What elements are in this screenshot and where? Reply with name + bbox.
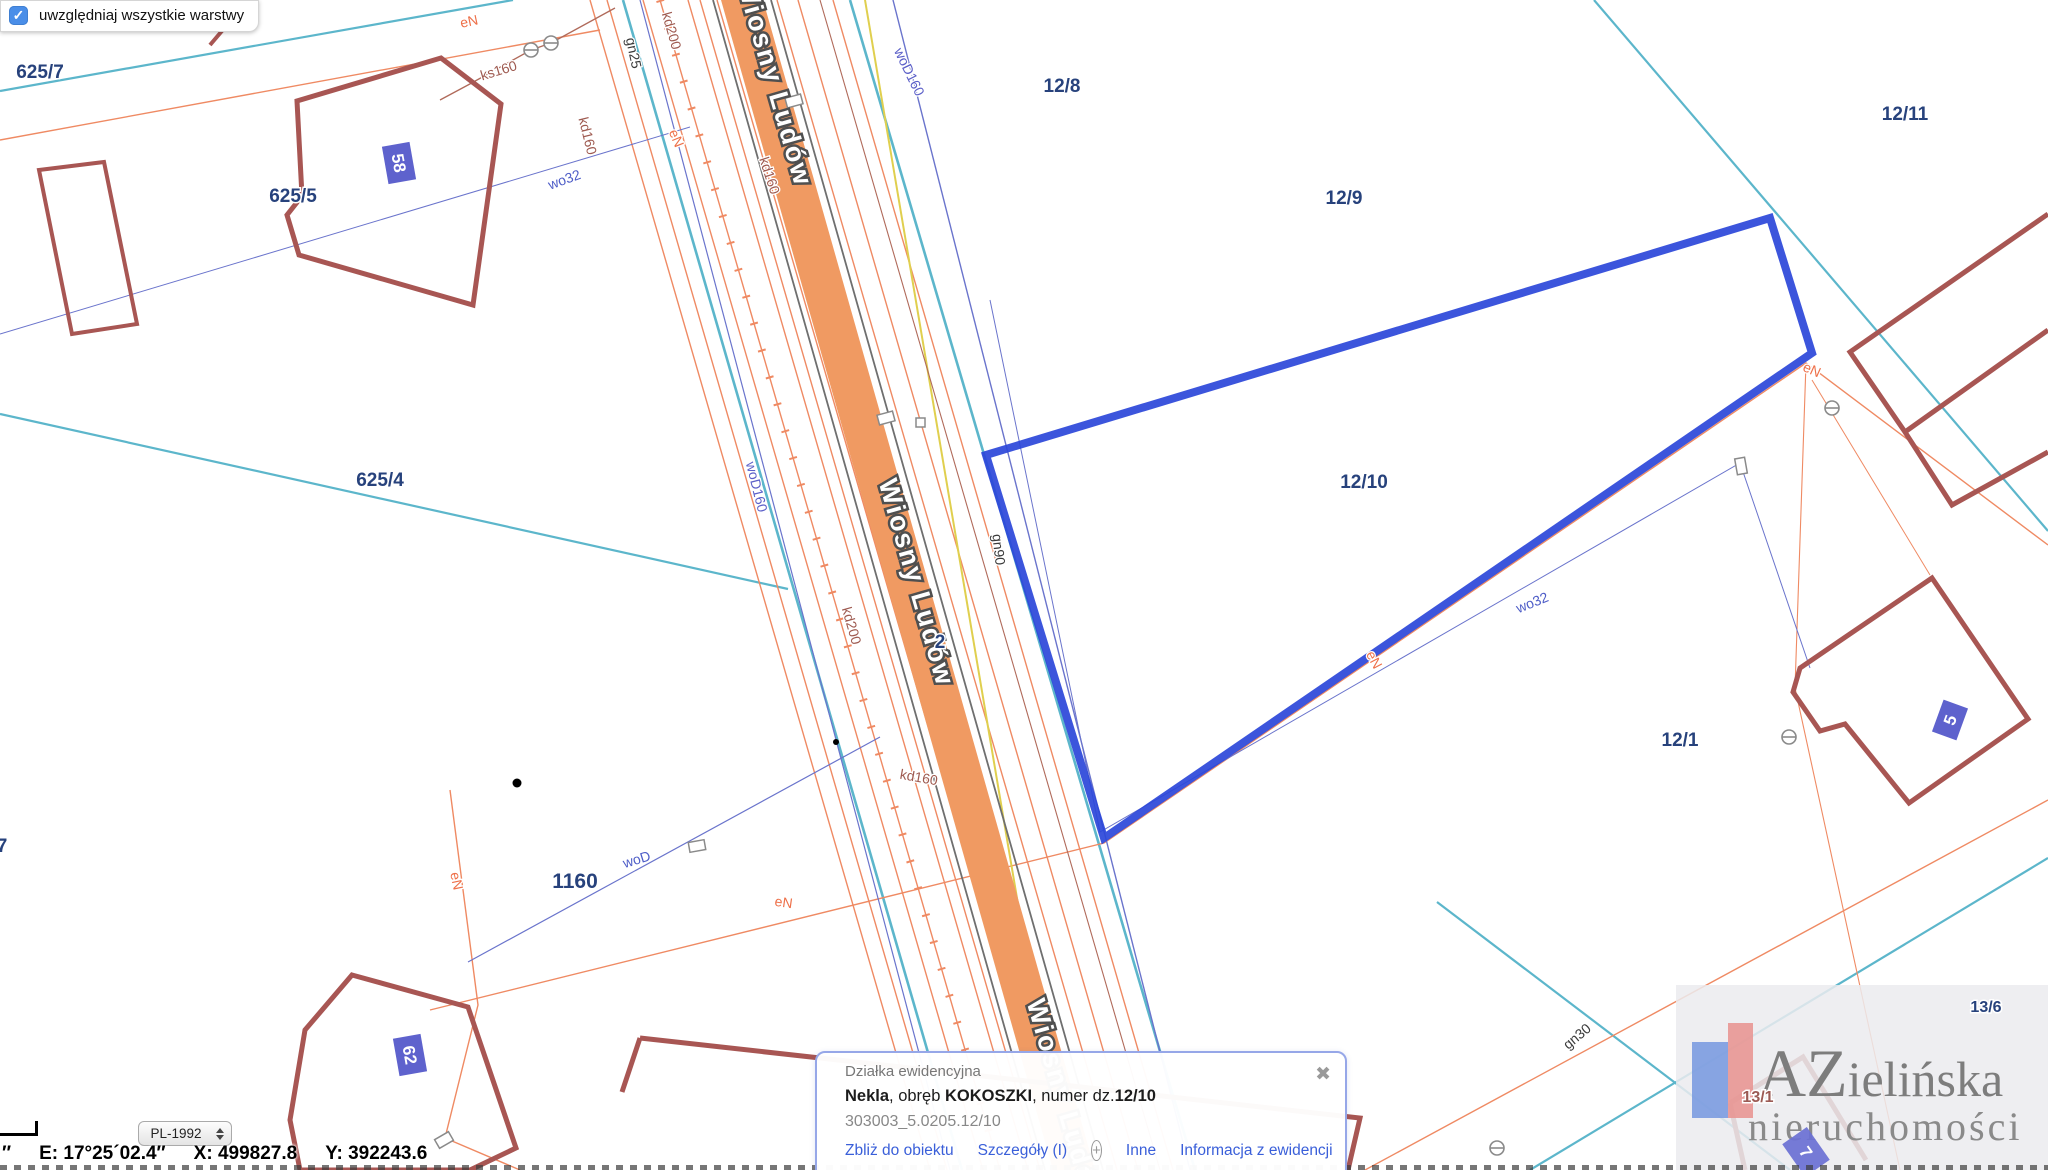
building-badge: 62 — [393, 1034, 427, 1076]
utility-label: ks160 — [478, 57, 519, 83]
utility-label: gn30 — [1560, 1020, 1594, 1052]
popup-sep1: , obręb — [889, 1087, 945, 1105]
circle-plus-icon[interactable]: + — [1091, 1140, 1102, 1161]
manhole-symbols — [524, 36, 1839, 1155]
popup-title: Działka ewidencyjna — [845, 1063, 1329, 1080]
utility-label: wo32 — [545, 166, 583, 193]
utility-label: wo32 — [1513, 589, 1551, 617]
utility-label: eN — [774, 893, 794, 911]
utility-label: kd160 — [899, 766, 940, 788]
parcel-label: 13/1 — [1742, 1089, 1773, 1106]
utility-label: kd160 — [575, 115, 600, 156]
manhole-icon — [544, 36, 558, 50]
parcel-label: 12/9 — [1326, 188, 1363, 209]
map-canvas[interactable]: AZielińska nieruchomości Wiosny Ludów Wi… — [0, 0, 2048, 1170]
building-badge: 58 — [382, 142, 416, 184]
logo-bar-blue — [1692, 1042, 1728, 1118]
utility-label: eN — [666, 127, 688, 150]
utility-labels: eN eN eN eN eN eN ks160 kd200 kd160 kd16… — [447, 10, 1823, 1052]
popup-sep2: , numer dz. — [1032, 1087, 1115, 1105]
utility-label: kd200 — [659, 10, 685, 51]
utility-label: kd200 — [839, 605, 865, 646]
parcel-label: 625/4 — [356, 470, 404, 491]
utility-label: woD160 — [891, 44, 928, 98]
parcel-label: 2 — [935, 632, 946, 653]
parcel-label: 7 — [0, 836, 7, 857]
svg-text:58: 58 — [388, 152, 410, 174]
building-badge: 5 — [1932, 700, 1968, 741]
layers-toggle-label: uwzględniaj wszystkie warstwy — [39, 7, 244, 24]
other-link[interactable]: Inne — [1126, 1142, 1156, 1160]
utility-label: eN — [459, 11, 480, 30]
cabinet-icon — [435, 1132, 454, 1149]
popup-actions: Zbliż do obiektu Szczegóły (I) + Inne In… — [845, 1140, 1329, 1161]
scalebar-tick — [35, 1121, 38, 1136]
building-small-left — [39, 162, 137, 334]
manhole-icon — [1490, 1141, 1504, 1155]
select-arrows-icon — [213, 1128, 227, 1140]
cabinet-symbols — [435, 94, 1748, 1148]
popup-parcel-id: 303003_5.0205.12/10 — [845, 1113, 1329, 1131]
utility-label: eN — [447, 871, 466, 892]
popup-district: KOKOSZKI — [945, 1087, 1032, 1105]
coord-y: Y: 392243.6 — [325, 1143, 427, 1165]
scalebar — [0, 1133, 38, 1136]
parcel-label: 12/1 — [1662, 730, 1699, 751]
popup-parcel-number: 12/10 — [1115, 1087, 1156, 1105]
utility-label: woD160 — [743, 459, 771, 514]
popup-parcel-line: Nekla, obręb KOKOSZKI, numer dz.12/10 — [845, 1087, 1329, 1106]
utility-label: woD — [620, 847, 652, 871]
coord-e: E: 17°25´02.4″ — [39, 1143, 166, 1165]
manhole-icon — [1825, 401, 1839, 415]
cabinet-icon — [688, 840, 705, 853]
parcel-label: 12/8 — [1044, 76, 1081, 97]
popup-town: Nekla — [845, 1087, 889, 1105]
manhole-icon — [1782, 730, 1796, 744]
building-house-5 — [1793, 578, 2028, 803]
parcel-label: 1160 — [552, 870, 598, 893]
parcel-label: 12/11 — [1882, 104, 1929, 125]
parcel-label: 625/7 — [16, 62, 64, 83]
boundary-point-dots — [513, 739, 840, 788]
parcel-label: 13/6 — [1970, 999, 2001, 1016]
details-link[interactable]: Szczegóły (I) — [978, 1142, 1068, 1160]
layers-checkbox[interactable]: ✓ — [9, 6, 28, 25]
svg-text:62: 62 — [399, 1044, 421, 1066]
parcel-label: 12/10 — [1340, 472, 1388, 493]
node-square-icon — [916, 418, 925, 427]
coordinate-readout: ″ E: 17°25´02.4″ X: 499827.8 Y: 392243.6 — [2, 1143, 427, 1165]
street-name-labels: Wiosny Ludów Wiosny Ludów Wiosny Ludów — [731, 0, 1109, 1170]
coord-seconds: ″ — [2, 1143, 11, 1165]
parcel-label: 625/5 — [269, 186, 317, 207]
cabinet-icon — [1735, 457, 1748, 474]
crs-select-value: PL-1992 — [139, 1126, 213, 1141]
manhole-icon — [524, 43, 538, 57]
utility-label: gn90 — [989, 533, 1008, 566]
coord-x: X: 499827.8 — [194, 1143, 298, 1165]
registry-info-link[interactable]: Informacja z ewidencji — [1180, 1142, 1332, 1160]
close-icon[interactable]: ✖ — [1315, 1063, 1331, 1086]
parcel-info-popup: ✖ Działka ewidencyjna Nekla, obręb KOKOS… — [815, 1051, 1347, 1170]
map-viewer: AZielińska nieruchomości Wiosny Ludów Wi… — [0, 0, 2048, 1170]
zoom-to-object-link[interactable]: Zbliż do obiektu — [845, 1142, 954, 1160]
building-strips-topright — [1850, 214, 2048, 505]
layers-toggle-panel: ✓ uwzględniaj wszystkie warstwy — [0, 0, 259, 32]
